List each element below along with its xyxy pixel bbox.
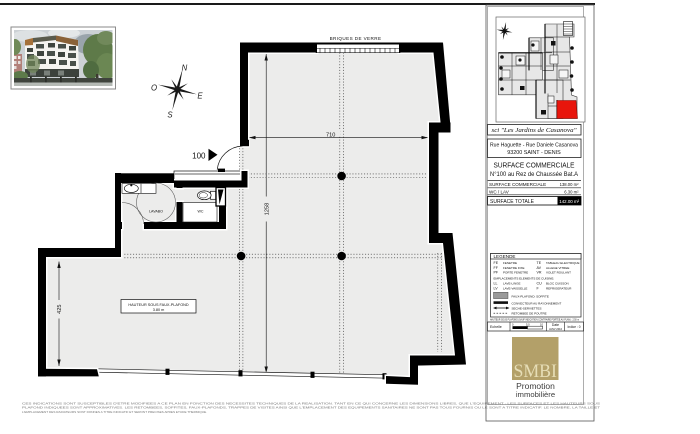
svg-text:EMPLACEMENTS ELEMENTS DE CUISI: EMPLACEMENTS ELEMENTS DE CUISINE: <box>494 276 555 280</box>
svg-text:HAUTEUR SOUS FAUX-PLAFOND: HAUTEUR SOUS FAUX-PLAFOND <box>128 303 189 307</box>
svg-text:N°100 au Rez de Chaussée Bat.: N°100 au Rez de Chaussée Bat.A <box>490 172 578 178</box>
svg-text:6.30 m²: 6.30 m² <box>564 189 579 194</box>
svg-text:PF: PF <box>494 271 499 275</box>
svg-text:PORTE FENETRE: PORTE FENETRE <box>503 271 528 275</box>
svg-text:SECHE-SERVIETTES: SECHE-SERVIETTES <box>512 306 542 310</box>
svg-text:REFRIGERATEUR: REFRIGERATEUR <box>546 286 572 290</box>
svg-text:TABLEAU ELECTRIQUE: TABLEAU ELECTRIQUE <box>546 261 579 265</box>
svg-text:100: 100 <box>192 151 206 160</box>
svg-text:E: E <box>197 92 203 101</box>
svg-text:Indice : 0: Indice : 0 <box>568 325 581 329</box>
svg-text:SURFACE TOTALE: SURFACE TOTALE <box>490 199 535 205</box>
svg-text:immobilière: immobilière <box>516 390 555 399</box>
svg-text:5,0: 5,0 <box>526 322 530 326</box>
svg-text:SURFACE COMMERCIALE: SURFACE COMMERCIALE <box>494 161 575 170</box>
svg-text:3.80 m: 3.80 m <box>153 308 165 312</box>
svg-text:1258: 1258 <box>264 203 270 215</box>
svg-text:138.00 m²: 138.00 m² <box>560 182 579 187</box>
svg-text:FAUX-PLAFOND: SOFFITE: FAUX-PLAFOND: SOFFITE <box>512 295 549 299</box>
svg-text:FE: FE <box>494 261 499 265</box>
svg-text:SMBI: SMBI <box>513 361 557 382</box>
svg-text:WC: WC <box>198 210 204 214</box>
svg-text:LAVE-LINGE: LAVE-LINGE <box>503 282 520 286</box>
svg-text:142.00 m²: 142.00 m² <box>559 199 579 204</box>
svg-text:FENETRE: FENETRE <box>503 261 517 265</box>
svg-text:N: N <box>182 64 188 73</box>
svg-text:SURFACE COMMERCIALE: SURFACE COMMERCIALE <box>489 182 546 187</box>
svg-text:VR: VR <box>537 271 542 275</box>
svg-text:LV: LV <box>494 286 499 290</box>
svg-text:93200 SAINT - DENIS: 93200 SAINT - DENIS <box>507 150 561 156</box>
svg-text:PLAFOND INDIQUEES SONT APPROXI: PLAFOND INDIQUEES SONT APPROXIMATIVES. L… <box>22 407 601 410</box>
svg-text:LEGENDE: LEGENDE <box>494 254 516 259</box>
svg-text:CES INDICATIONS SONT SUSCEPTIB: CES INDICATIONS SONT SUSCEPTIBLES D'ETRE… <box>22 403 601 406</box>
svg-text:JANV 2010: JANV 2010 <box>549 327 563 331</box>
svg-text:S: S <box>167 111 173 120</box>
svg-text:FENETRE FIXE: FENETRE FIXE <box>503 266 525 270</box>
svg-text:Echelle: Echelle <box>490 325 502 329</box>
svg-text:VOLET ROULANT: VOLET ROULANT <box>546 271 571 275</box>
svg-text:LAVE-VAISSELLE: LAVE-VAISSELLE <box>503 286 527 290</box>
svg-text:RETOMBEE DE POUTRE: RETOMBEE DE POUTRE <box>512 312 547 316</box>
svg-text:LAVABO: LAVABO <box>149 210 163 214</box>
svg-text:710: 710 <box>326 132 335 138</box>
svg-text:L'EMPLACEMENT DES RADIATEURS S: L'EMPLACEMENT DES RADIATEURS SONT DONNES… <box>22 411 207 414</box>
svg-text:TE: TE <box>537 261 542 265</box>
svg-text:CU: CU <box>537 282 543 286</box>
svg-text:CONVECTEUR AU RAYONNEMENT: CONVECTEUR AU RAYONNEMENT <box>512 301 562 305</box>
svg-text:BRIQUES DE VERRE: BRIQUES DE VERRE <box>330 36 382 41</box>
svg-text:sci "Les Jardins de Casanova": sci "Les Jardins de Casanova" <box>492 128 578 134</box>
svg-text:LL: LL <box>494 282 498 286</box>
svg-text:O: O <box>151 84 157 93</box>
svg-text:Rue Haguette - Rue Daniele Cas: Rue Haguette - Rue Daniele Casanova <box>490 143 578 149</box>
svg-text:BLOC CUISSON: BLOC CUISSON <box>546 282 569 286</box>
svg-text:HAUTEUR SOUS PLAFOND (SAUF IND: HAUTEUR SOUS PLAFOND (SAUF INDICATION CO… <box>490 317 579 321</box>
svg-text:ALLEGE VITREE: ALLEGE VITREE <box>546 266 569 270</box>
svg-text:Date: Date <box>552 323 559 327</box>
svg-text:AV: AV <box>537 266 542 270</box>
svg-text:WC / LAV: WC / LAV <box>489 189 510 194</box>
svg-text:425: 425 <box>57 305 63 314</box>
